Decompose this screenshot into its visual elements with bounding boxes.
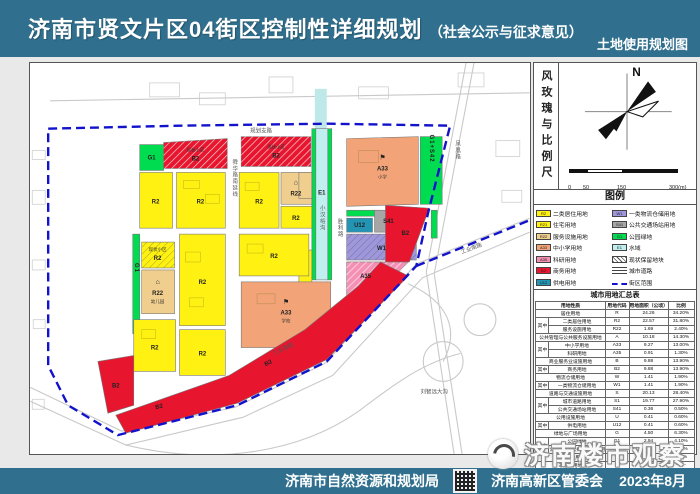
parcel-code: R2 (152, 199, 160, 205)
col-header: 用地代码 (605, 302, 629, 310)
ditch-label: 刘智远大沟 (421, 387, 448, 395)
table-row: 其中商务用地B29.8813.90% (536, 366, 694, 374)
parcel-e1-stream (316, 129, 328, 280)
legend-item: A33中小学用地 (536, 243, 612, 254)
parcel-code: G1+S42 (428, 135, 434, 163)
legend-panel: 图例 R2二类居住用地 W1一类物流仓储用地 R21住宅用地 S41公共交通场站… (533, 189, 697, 290)
parcel-code: E1 (318, 190, 326, 196)
watermark-logo-icon (488, 439, 518, 469)
legend-item: E1水域 (612, 243, 698, 254)
swatch-city-road (612, 267, 627, 274)
legend-label: 商务用地 (553, 266, 576, 275)
windrose-panel-label: 风玫瑰与比例尺 (534, 63, 559, 189)
legend-item: S41公共交通场站用地 (612, 220, 698, 231)
table-row: 道路与交通设施用地S20.1328.40% (536, 390, 694, 398)
swatch-b2: B2 (536, 267, 551, 274)
table-row: 公共管理与公共服务设施用地A10.1814.30% (536, 334, 694, 342)
legend-label: 一类物流仓储用地 (629, 209, 675, 218)
watermark: 济南楼市观察 (488, 436, 686, 472)
legend-item: 城市道路 (612, 266, 698, 277)
parcel-code: R2 (255, 199, 263, 205)
legend-label: 服务设施用地 (553, 232, 588, 241)
swatch-w1: W1 (612, 210, 627, 217)
school-icon: ⚑ (283, 298, 289, 306)
swatch-u12: U12 (536, 279, 551, 286)
legend-label: 公园绿地 (629, 232, 652, 241)
parcel-g1-stream-west (312, 129, 316, 280)
legend-title: 图例 (534, 190, 696, 205)
map-canvas: 规划支路 凤凰路 舜华路南延线 胜利路 小汉峪沟 工业南路 工业南路 刘智远大沟… (30, 63, 530, 454)
parcel-code: A33 (281, 311, 293, 317)
page-title: 济南市贤文片区04街区控制性详细规划 (28, 17, 422, 42)
parcel-code: A33 (377, 166, 389, 172)
parcel-code: G1 (133, 263, 139, 273)
swatch-g1: G1 (612, 233, 627, 240)
parcel-b2-retained-1 (164, 139, 228, 169)
parcel-code: B2 (112, 383, 120, 389)
parcel-code: B2 (192, 157, 200, 163)
school-icon: ⚑ (379, 154, 385, 162)
footer-org-2: 济南高新区管委会 (491, 471, 603, 491)
table-row: 服务设施用地R221.692.40% (536, 326, 694, 334)
land-use-map: 规划支路 凤凰路 舜华路南延线 胜利路 小汉峪沟 工业南路 工业南路 刘智远大沟… (29, 62, 531, 455)
landuse-table-panel: 城市用地汇总表 用地性质 用地代码 用地面积（公顷） 比例 居住用地R24.26… (533, 289, 697, 455)
scale-bar (569, 169, 687, 173)
stream-label: 小汉峪沟 (319, 204, 326, 231)
table-row: 公共交通场站用地S410.360.50% (536, 406, 694, 414)
swatch-a33: A33 (536, 244, 551, 251)
col-header: 用地性质 (536, 302, 605, 310)
legend-item: A35科研用地 (536, 254, 612, 265)
swatch-a35: A35 (536, 256, 551, 263)
parcel-code: R2 (197, 199, 205, 205)
parcel-name: 学校 (282, 318, 291, 325)
house-icon: ⌂ (156, 279, 160, 286)
north-label: N (632, 65, 641, 79)
parcel-code: W1 (377, 246, 387, 252)
parcel-b2-retained-2 (241, 137, 311, 167)
table-row: 其中中小学用地A339.2713.00% (536, 342, 694, 350)
swatch-s41: S41 (612, 221, 627, 228)
table-row: 其中城市道路用地S119.7727.90% (536, 398, 694, 406)
parcel-code: R2 (154, 256, 162, 262)
page-subtitle: （社会公示与征求意见） (429, 24, 583, 40)
windrose-area: N 0 50 150 300(m) (559, 63, 696, 189)
parcel-code: R2 (199, 280, 207, 286)
footer-org-1: 济南市自然资源和规划局 (285, 471, 439, 491)
swatch-e1: E1 (612, 244, 627, 251)
col-header: 用地面积（公顷） (629, 302, 668, 310)
header-bar: 济南市贤文片区04街区控制性详细规划 （社会公示与征求意见） 土地使用规划图 (0, 0, 700, 57)
title-line: 济南市贤文片区04街区控制性详细规划 （社会公示与征求意见） (28, 12, 583, 44)
swatch-retained-hatch (612, 256, 627, 263)
windrose-panel: 风玫瑰与比例尺 N 0 50 150 300(m) (533, 62, 697, 190)
wind-rose: N (559, 63, 695, 155)
col-header: 比例 (668, 302, 694, 310)
road-label-top: 规划支路 (250, 127, 272, 135)
legend-label: 公共交通场站用地 (629, 220, 675, 229)
table-row: 居住用地R24.2634.20% (536, 310, 694, 318)
legend-item: U12供电用地 (536, 277, 612, 288)
parcel-name: 幼儿园 (151, 298, 165, 305)
table-header-row: 用地性质 用地代码 用地面积（公顷） 比例 (536, 302, 694, 310)
parcel-name: 小学 (378, 173, 387, 180)
legend-label: 水域 (629, 243, 641, 252)
qr-code-icon (455, 471, 475, 491)
legend-label: 现状保留地块 (629, 255, 664, 264)
legend-item: R2二类居住用地 (536, 208, 612, 219)
parcel-code: U12 (354, 223, 366, 229)
legend-grid: R2二类居住用地 W1一类物流仓储用地 R21住宅用地 S41公共交通场站用地 … (534, 205, 696, 288)
legend-label: 二类居住用地 (553, 209, 588, 218)
swatch-block-boundary (612, 283, 627, 285)
legend-label: 街区范围 (629, 278, 652, 287)
swatch-r2: R2 (536, 210, 551, 217)
legend-label: 住宅用地 (553, 220, 576, 229)
road-label-shunhua: 舜华路南延线 (231, 158, 238, 198)
legend-item: W1一类物流仓储用地 (612, 208, 698, 219)
house-icon: ⌂ (294, 179, 298, 186)
planning-announcement-page: 济南市贤文片区04街区控制性详细规划 （社会公示与征求意见） 土地使用规划图 (0, 0, 700, 494)
parcel-code: A35 (360, 274, 372, 280)
parcel-code: R2 (270, 254, 278, 260)
parcel-code: R2 (292, 216, 300, 222)
legend-item: 街区范围 (612, 277, 698, 288)
parcel-code: R22 (290, 191, 302, 197)
legend-item: G1公园绿地 (612, 231, 698, 242)
parcel-name: 现状小区 (149, 246, 167, 253)
table-row: 商业服务业设施用地B9.8813.90% (536, 358, 694, 366)
table-row: 科研用地A350.911.30% (536, 350, 694, 358)
wind-rose-petal (627, 101, 659, 117)
legend-label: 供电用地 (553, 278, 576, 287)
table-row: 物流仓储用地W1.411.90% (536, 374, 694, 382)
table-row: 公用设施用地U0.410.60% (536, 414, 694, 422)
parcel-code: G1 (148, 156, 157, 162)
map-type-label: 土地使用规划图 (597, 34, 688, 53)
swatch-r22: R22 (536, 233, 551, 240)
parcel-g1-sliver (431, 210, 437, 238)
parcel-code: B2 (402, 231, 410, 237)
road-label-shengli: 胜利路 (337, 217, 344, 238)
legend-label: 科研用地 (553, 255, 576, 264)
legend-item: 现状保留地块 (612, 254, 698, 265)
parcel-code: R2 (151, 346, 159, 352)
watermark-text: 济南楼市观察 (524, 436, 686, 472)
table-row: 其中一类物流仓储用地W11.411.90% (536, 382, 694, 390)
parcel-code: R22 (152, 291, 164, 297)
landuse-table-title: 城市用地汇总表 (534, 290, 696, 301)
legend-label: 城市道路 (629, 266, 652, 275)
legend-label: 中小学用地 (553, 243, 582, 252)
parcel-code: R2 (199, 352, 207, 358)
legend-item: R22服务设施用地 (536, 231, 612, 242)
parcel-g1-stream-east (328, 129, 332, 280)
parcel-code: B2 (272, 154, 280, 160)
table-row: 其中二类居住用地R222.5731.80% (536, 318, 694, 326)
parcel-code: S41 (383, 219, 394, 225)
parcel-name: 现状小区 (186, 147, 204, 154)
legend-item: B2商务用地 (536, 266, 612, 277)
table-row: 其中供电用地U120.410.60% (536, 422, 694, 430)
road-label-fenghuang: 凤凰路 (454, 141, 461, 161)
legend-item: R21住宅用地 (536, 220, 612, 231)
parcel-name: 现状小区 (267, 144, 285, 151)
footer-date: 2023年8月 (619, 471, 686, 491)
parcel-g1-west-strip (133, 234, 140, 333)
swatch-r21: R21 (536, 221, 551, 228)
